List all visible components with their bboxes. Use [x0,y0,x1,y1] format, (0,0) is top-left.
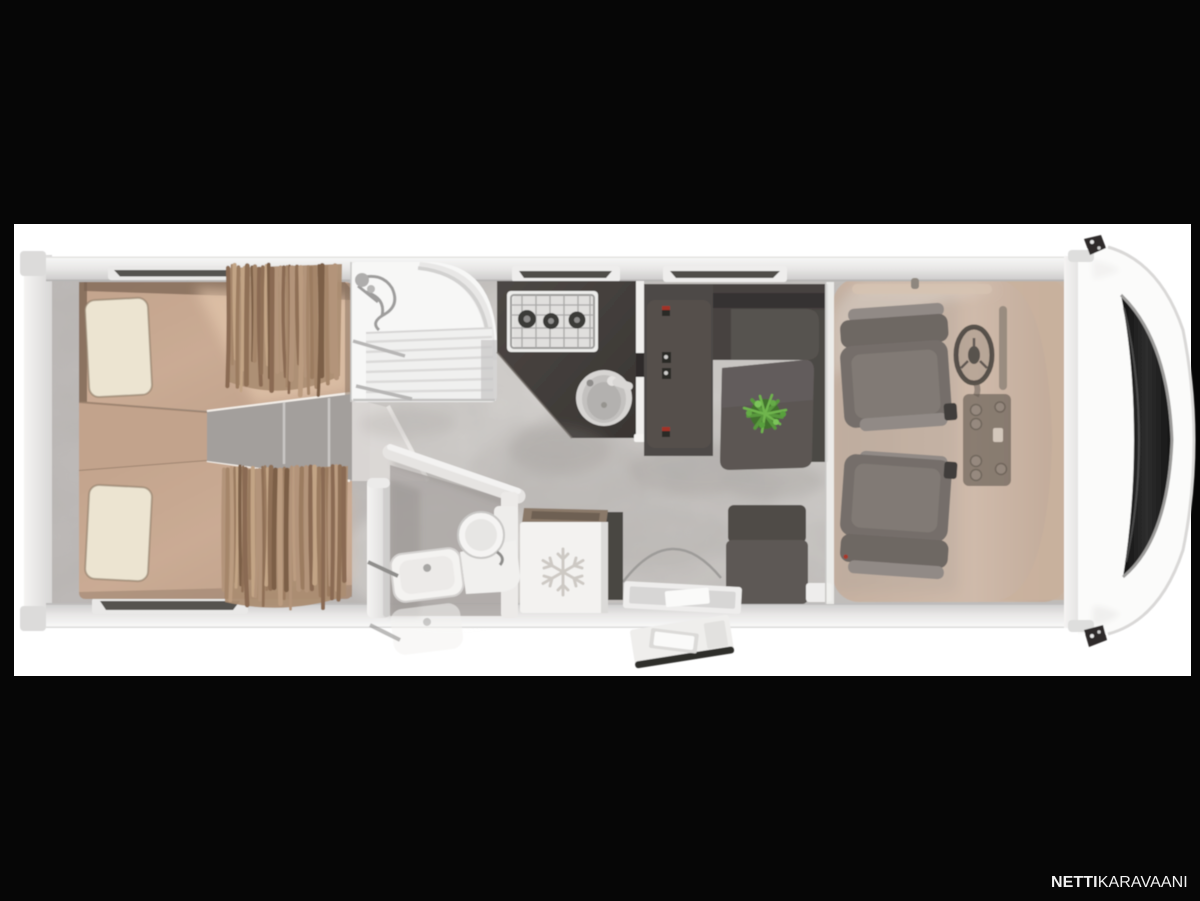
svg-text:NETTIKARAVAANI: NETTIKARAVAANI [1051,874,1188,891]
